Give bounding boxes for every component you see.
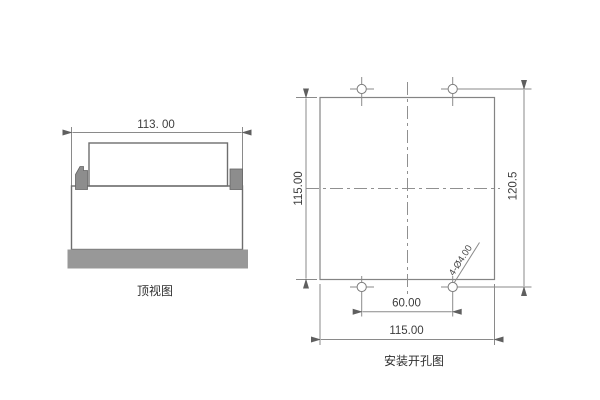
hole-circle xyxy=(448,282,457,291)
top-view-drawing: 113. 00 顶视图 xyxy=(68,119,249,298)
hole-row-spacing-dim-label: 120.5 xyxy=(508,172,520,201)
mounting-hole-bottom-left xyxy=(350,276,374,317)
top-view-mounting-clip-left xyxy=(76,167,88,190)
hole-col-spacing-dim-label: 60.00 xyxy=(392,298,421,310)
hole-circle xyxy=(357,84,366,93)
mounting-view-caption: 安装开孔图 xyxy=(384,353,444,368)
top-view-mounting-clip-right xyxy=(230,169,243,190)
top-view-base-bar xyxy=(68,250,249,269)
hole-circle xyxy=(448,84,457,93)
top-view-rear-housing xyxy=(89,143,228,186)
mounting-hole-top-right xyxy=(441,77,532,106)
top-view-caption: 顶视图 xyxy=(137,283,173,298)
panel-height-dim-label: 115.00 xyxy=(293,171,305,205)
top-view-width-dim-label: 113. 00 xyxy=(137,119,175,131)
mounting-cutout-drawing: 115.00 120.5 60.00 115.00 xyxy=(293,77,532,368)
hole-row-spacing-dimension: 120.5 xyxy=(508,90,525,286)
hole-circle xyxy=(357,282,366,291)
technical-drawing-canvas: 113. 00 顶视图 xyxy=(0,0,600,400)
panel-width-dim-label: 115.00 xyxy=(389,325,423,337)
hole-col-spacing-dimension: 60.00 xyxy=(363,298,452,312)
technical-drawing-page: 113. 00 顶视图 xyxy=(0,0,600,400)
hole-size-callout: 4-Ø4.00 xyxy=(447,243,480,284)
mounting-hole-top-left xyxy=(350,77,374,106)
top-view-front-bezel xyxy=(72,186,243,250)
